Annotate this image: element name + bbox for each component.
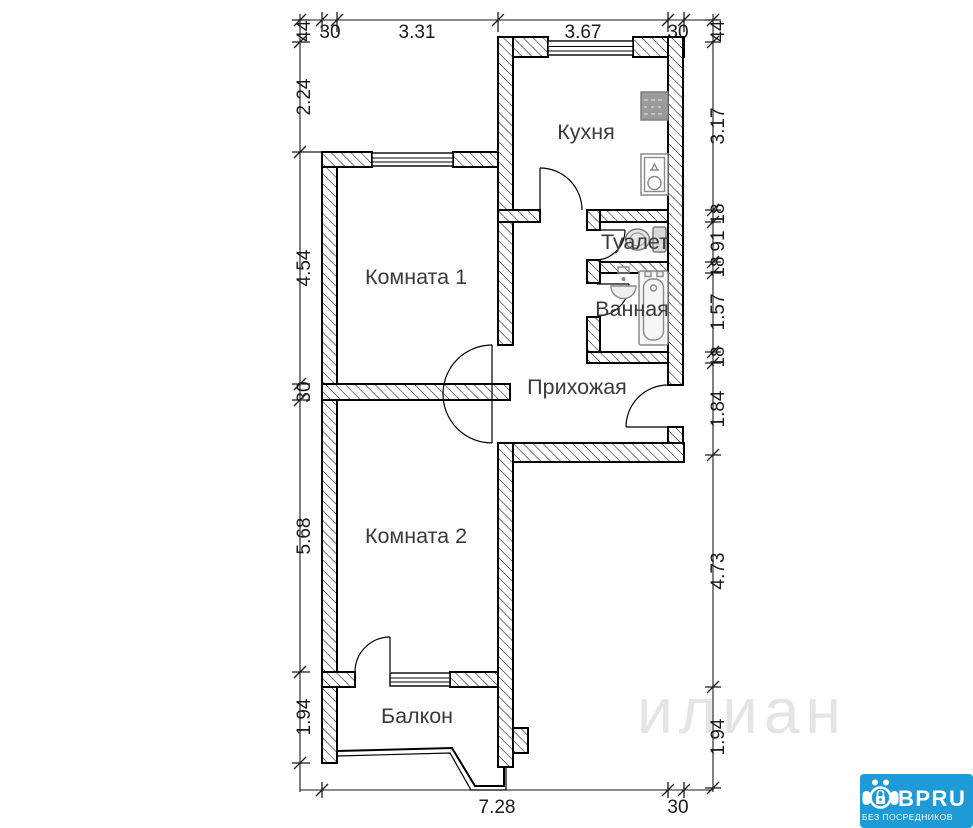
wall-wet-left-1 — [587, 210, 600, 230]
room1-window — [372, 153, 453, 166]
wall-bath-bottom — [587, 352, 668, 363]
dim-right-6: 18 — [708, 346, 729, 367]
wall-notch — [513, 728, 528, 753]
balcony-window — [390, 673, 450, 686]
dim-right-4: 18 — [708, 256, 729, 277]
dim-ticks-top — [316, 12, 690, 32]
room1-label: Комната 1 — [365, 265, 467, 289]
dim-right-8: 4.73 — [708, 553, 729, 590]
room2-label: Комната 2 — [365, 524, 467, 548]
hallway-label: Прихожая — [527, 375, 627, 399]
dim-left-3: 30 — [294, 381, 315, 402]
dim-left-2: 4.54 — [294, 249, 315, 286]
logo-tagline: БЕЗ ПОСРЕДНИКОВ — [862, 812, 953, 822]
dim-right-0: 44 — [708, 20, 729, 42]
dim-right-7: 1.84 — [708, 390, 729, 427]
dim-left-5: 1.94 — [294, 698, 315, 735]
dim-right-1: 3.17 — [708, 108, 729, 145]
dim-right-2: 18 — [708, 203, 729, 224]
dim-top-1: 3.31 — [399, 22, 436, 43]
dim-right-3: 91 — [708, 230, 729, 251]
wall-rooms-divider — [322, 384, 510, 400]
dim-top-0: 30 — [319, 22, 340, 43]
logo-brand: BPRU — [898, 786, 966, 811]
kitchen-sink-icon — [641, 154, 668, 195]
dim-right-9: 1.94 — [708, 718, 729, 755]
kitchen-window — [548, 41, 633, 55]
entrance-door — [626, 385, 668, 427]
walls — [322, 37, 684, 767]
wall-hallway-bottom — [498, 443, 684, 462]
dim-left-4: 5.68 — [294, 518, 315, 555]
wall-room1-top-right — [453, 152, 498, 167]
wall-kitchen-bottom-left — [498, 210, 540, 222]
wall-balcony-left-stub — [322, 672, 355, 687]
wall-balcony-right-stub — [450, 672, 498, 687]
dim-left-1: 2.24 — [294, 78, 315, 115]
floor-plan: илиан 30 3.31 3.67 30 44 2.24 4.54 30 5.… — [0, 0, 973, 828]
wall-room1-top-left — [322, 152, 372, 167]
wall-central-lower — [498, 443, 513, 767]
stove-icon — [641, 92, 668, 120]
watermark: илиан — [637, 675, 847, 747]
wall-central-upper — [498, 37, 513, 345]
dim-bottom-0: 7.28 — [479, 797, 516, 818]
bathroom-label: Ванная — [595, 297, 669, 321]
toilet-label: Туалет — [601, 230, 669, 254]
balcony-label: Балкон — [381, 704, 453, 728]
bpru-logo: BPRU БЕЗ ПОСРЕДНИКОВ — [860, 774, 973, 828]
wall-right-upper — [668, 37, 683, 385]
kitchen-door — [540, 168, 582, 210]
kitchen-label: Кухня — [557, 120, 615, 144]
floor-plan-page: илиан 30 3.31 3.67 30 44 2.24 4.54 30 5.… — [0, 0, 973, 828]
wall-wet-left-2 — [587, 260, 600, 283]
balcony-outline — [337, 748, 506, 790]
dim-right-5: 1.57 — [708, 294, 729, 331]
dim-left-0: 44 — [294, 20, 315, 42]
dim-bottom-1: 30 — [667, 797, 688, 818]
dim-top-2: 3.67 — [565, 22, 602, 43]
balcony-door — [355, 637, 390, 672]
